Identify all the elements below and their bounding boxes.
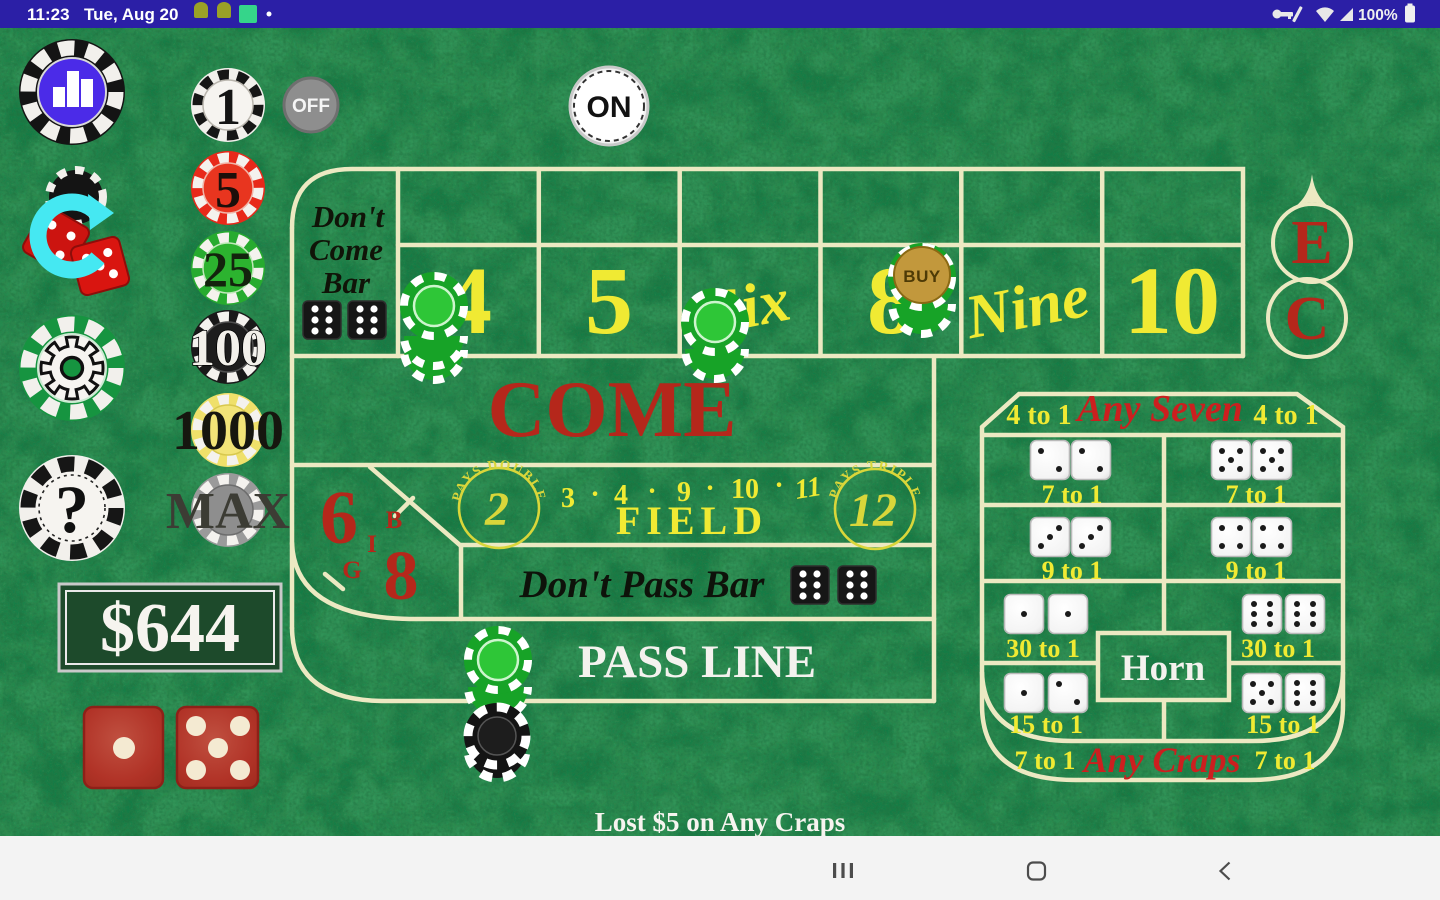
svg-text:Bar: Bar	[321, 265, 371, 300]
svg-text:5: 5	[215, 162, 241, 219]
svg-text:·: ·	[774, 470, 783, 501]
svg-text:3: 3	[561, 483, 575, 514]
svg-text:C: C	[1285, 285, 1330, 353]
svg-text:100: 100	[189, 320, 267, 377]
svg-text:1000: 1000	[172, 400, 284, 462]
svg-text:30 to 1: 30 to 1	[1241, 634, 1315, 663]
svg-text:BUY: BUY	[903, 267, 941, 286]
svg-text:7 to 1: 7 to 1	[1015, 746, 1076, 775]
svg-text:Horn: Horn	[1121, 648, 1206, 689]
svg-text:2: 2	[484, 483, 509, 536]
svg-text:11:23: 11:23	[27, 5, 70, 24]
svg-text:$644: $644	[100, 590, 240, 667]
svg-text:5: 5	[585, 247, 633, 354]
svg-text:·: ·	[590, 479, 599, 510]
svg-text:G: G	[342, 557, 361, 584]
svg-text:100%: 100%	[1358, 7, 1398, 24]
svg-text:B: B	[386, 507, 403, 534]
svg-text:Any Seven: Any Seven	[1075, 388, 1243, 430]
svg-text:Don't Pass Bar: Don't Pass Bar	[519, 563, 766, 606]
svg-text:ON: ON	[587, 91, 632, 124]
svg-text:4 to 1: 4 to 1	[1006, 400, 1071, 431]
svg-text:Don't: Don't	[311, 199, 386, 234]
svg-text:1: 1	[215, 79, 241, 136]
svg-text:8: 8	[384, 538, 419, 615]
svg-text:7 to 1: 7 to 1	[1042, 480, 1103, 509]
svg-text:PASS LINE: PASS LINE	[578, 636, 816, 688]
svg-text:9 to 1: 9 to 1	[1042, 556, 1103, 585]
svg-text:12: 12	[849, 484, 897, 537]
svg-text:I: I	[367, 531, 377, 558]
svg-text:25: 25	[203, 241, 253, 297]
svg-text:Any Craps: Any Craps	[1081, 740, 1240, 780]
svg-text:Tue, Aug 20: Tue, Aug 20	[84, 5, 178, 24]
svg-text:E: E	[1291, 209, 1332, 277]
svg-text:6: 6	[320, 476, 358, 560]
svg-text:11: 11	[793, 471, 824, 506]
svg-text:FIELD: FIELD	[616, 498, 768, 543]
svg-text:MAX: MAX	[166, 483, 290, 540]
svg-text:7 to 1: 7 to 1	[1226, 480, 1287, 509]
svg-text:?: ?	[55, 471, 89, 547]
svg-text:9 to 1: 9 to 1	[1226, 556, 1287, 585]
svg-text:15 to 1: 15 to 1	[1009, 710, 1083, 739]
svg-text:OFF: OFF	[292, 96, 330, 117]
svg-text:10: 10	[1124, 247, 1220, 354]
svg-text:COME: COME	[488, 366, 737, 454]
svg-text:4 to 1: 4 to 1	[1253, 400, 1318, 431]
svg-text:Lost $5 on Any Craps: Lost $5 on Any Craps	[595, 807, 846, 837]
svg-text:15 to 1: 15 to 1	[1246, 710, 1320, 739]
svg-text:30 to 1: 30 to 1	[1006, 634, 1080, 663]
svg-text:Come: Come	[309, 232, 383, 267]
svg-text:7 to 1: 7 to 1	[1255, 746, 1316, 775]
